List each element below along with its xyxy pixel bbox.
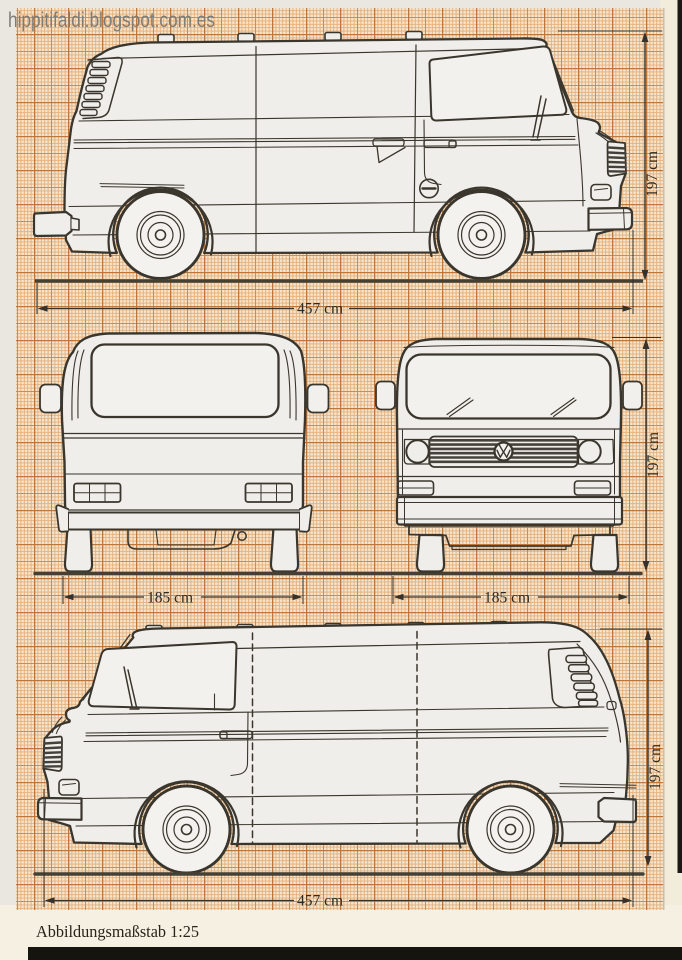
svg-text:hippitifaldi.blogspot.com.es: hippitifaldi.blogspot.com.es <box>8 8 215 32</box>
svg-text:185 cm: 185 cm <box>484 590 530 607</box>
svg-text:457 cm: 457 cm <box>297 893 343 910</box>
svg-text:197 cm: 197 cm <box>644 151 661 197</box>
svg-text:197 cm: 197 cm <box>647 744 664 790</box>
svg-text:185 cm: 185 cm <box>147 590 193 607</box>
svg-text:Abbildungsmaßstab 1:25: Abbildungsmaßstab 1:25 <box>36 922 199 941</box>
svg-text:197 cm: 197 cm <box>645 432 662 478</box>
svg-text:457 cm: 457 cm <box>297 301 343 318</box>
